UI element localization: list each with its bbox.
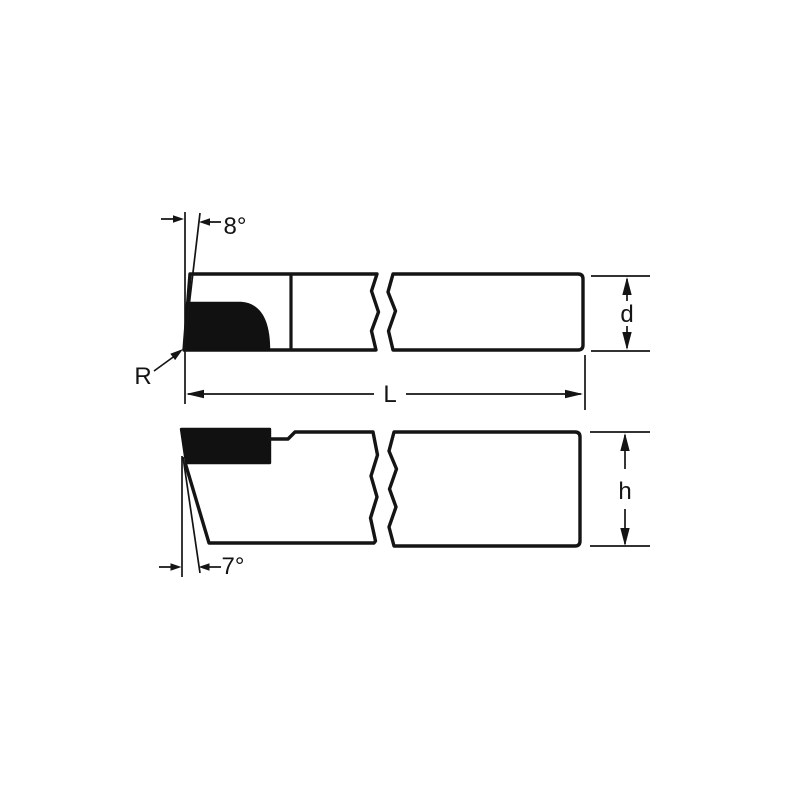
dimension-h: h <box>590 432 650 546</box>
top-view <box>184 274 583 350</box>
arrow-right-head-icon <box>173 215 184 223</box>
carbide-insert-plan <box>185 303 269 350</box>
label-shank-width: d <box>620 301 633 328</box>
dimension-L: L <box>186 355 585 410</box>
side-view <box>181 429 580 546</box>
label-top-angle: 8° <box>224 213 247 240</box>
arrow-left-head-icon <box>199 218 210 226</box>
dimension-d: d <box>591 276 650 351</box>
dim-arrow-up-icon <box>622 277 631 295</box>
label-overall-length: L <box>383 381 396 408</box>
scanned-tool-drawing: 8° R L d <box>0 0 800 800</box>
label-nose-radius: R <box>134 363 151 390</box>
dim-arrow-left-icon <box>186 390 204 399</box>
dim-arrow-right-icon <box>565 390 583 399</box>
side-view-shank-section-outline <box>389 432 580 546</box>
clearance-angle-line <box>183 457 200 573</box>
dim-arrow-down-icon <box>620 528 629 546</box>
dim-arrow-up-icon <box>620 433 629 451</box>
radius-leader-line <box>154 355 176 371</box>
label-shank-height: h <box>618 478 631 505</box>
radius-callout: R <box>134 349 183 390</box>
tool-diagram-svg: 8° R L d <box>0 0 800 800</box>
arrow-right-head-icon <box>171 563 182 571</box>
carbide-insert-side <box>181 429 270 463</box>
top-view-shank-section-outline <box>388 274 583 350</box>
label-front-clearance-angle: 7° <box>222 553 245 580</box>
dim-arrow-down-icon <box>622 332 631 350</box>
